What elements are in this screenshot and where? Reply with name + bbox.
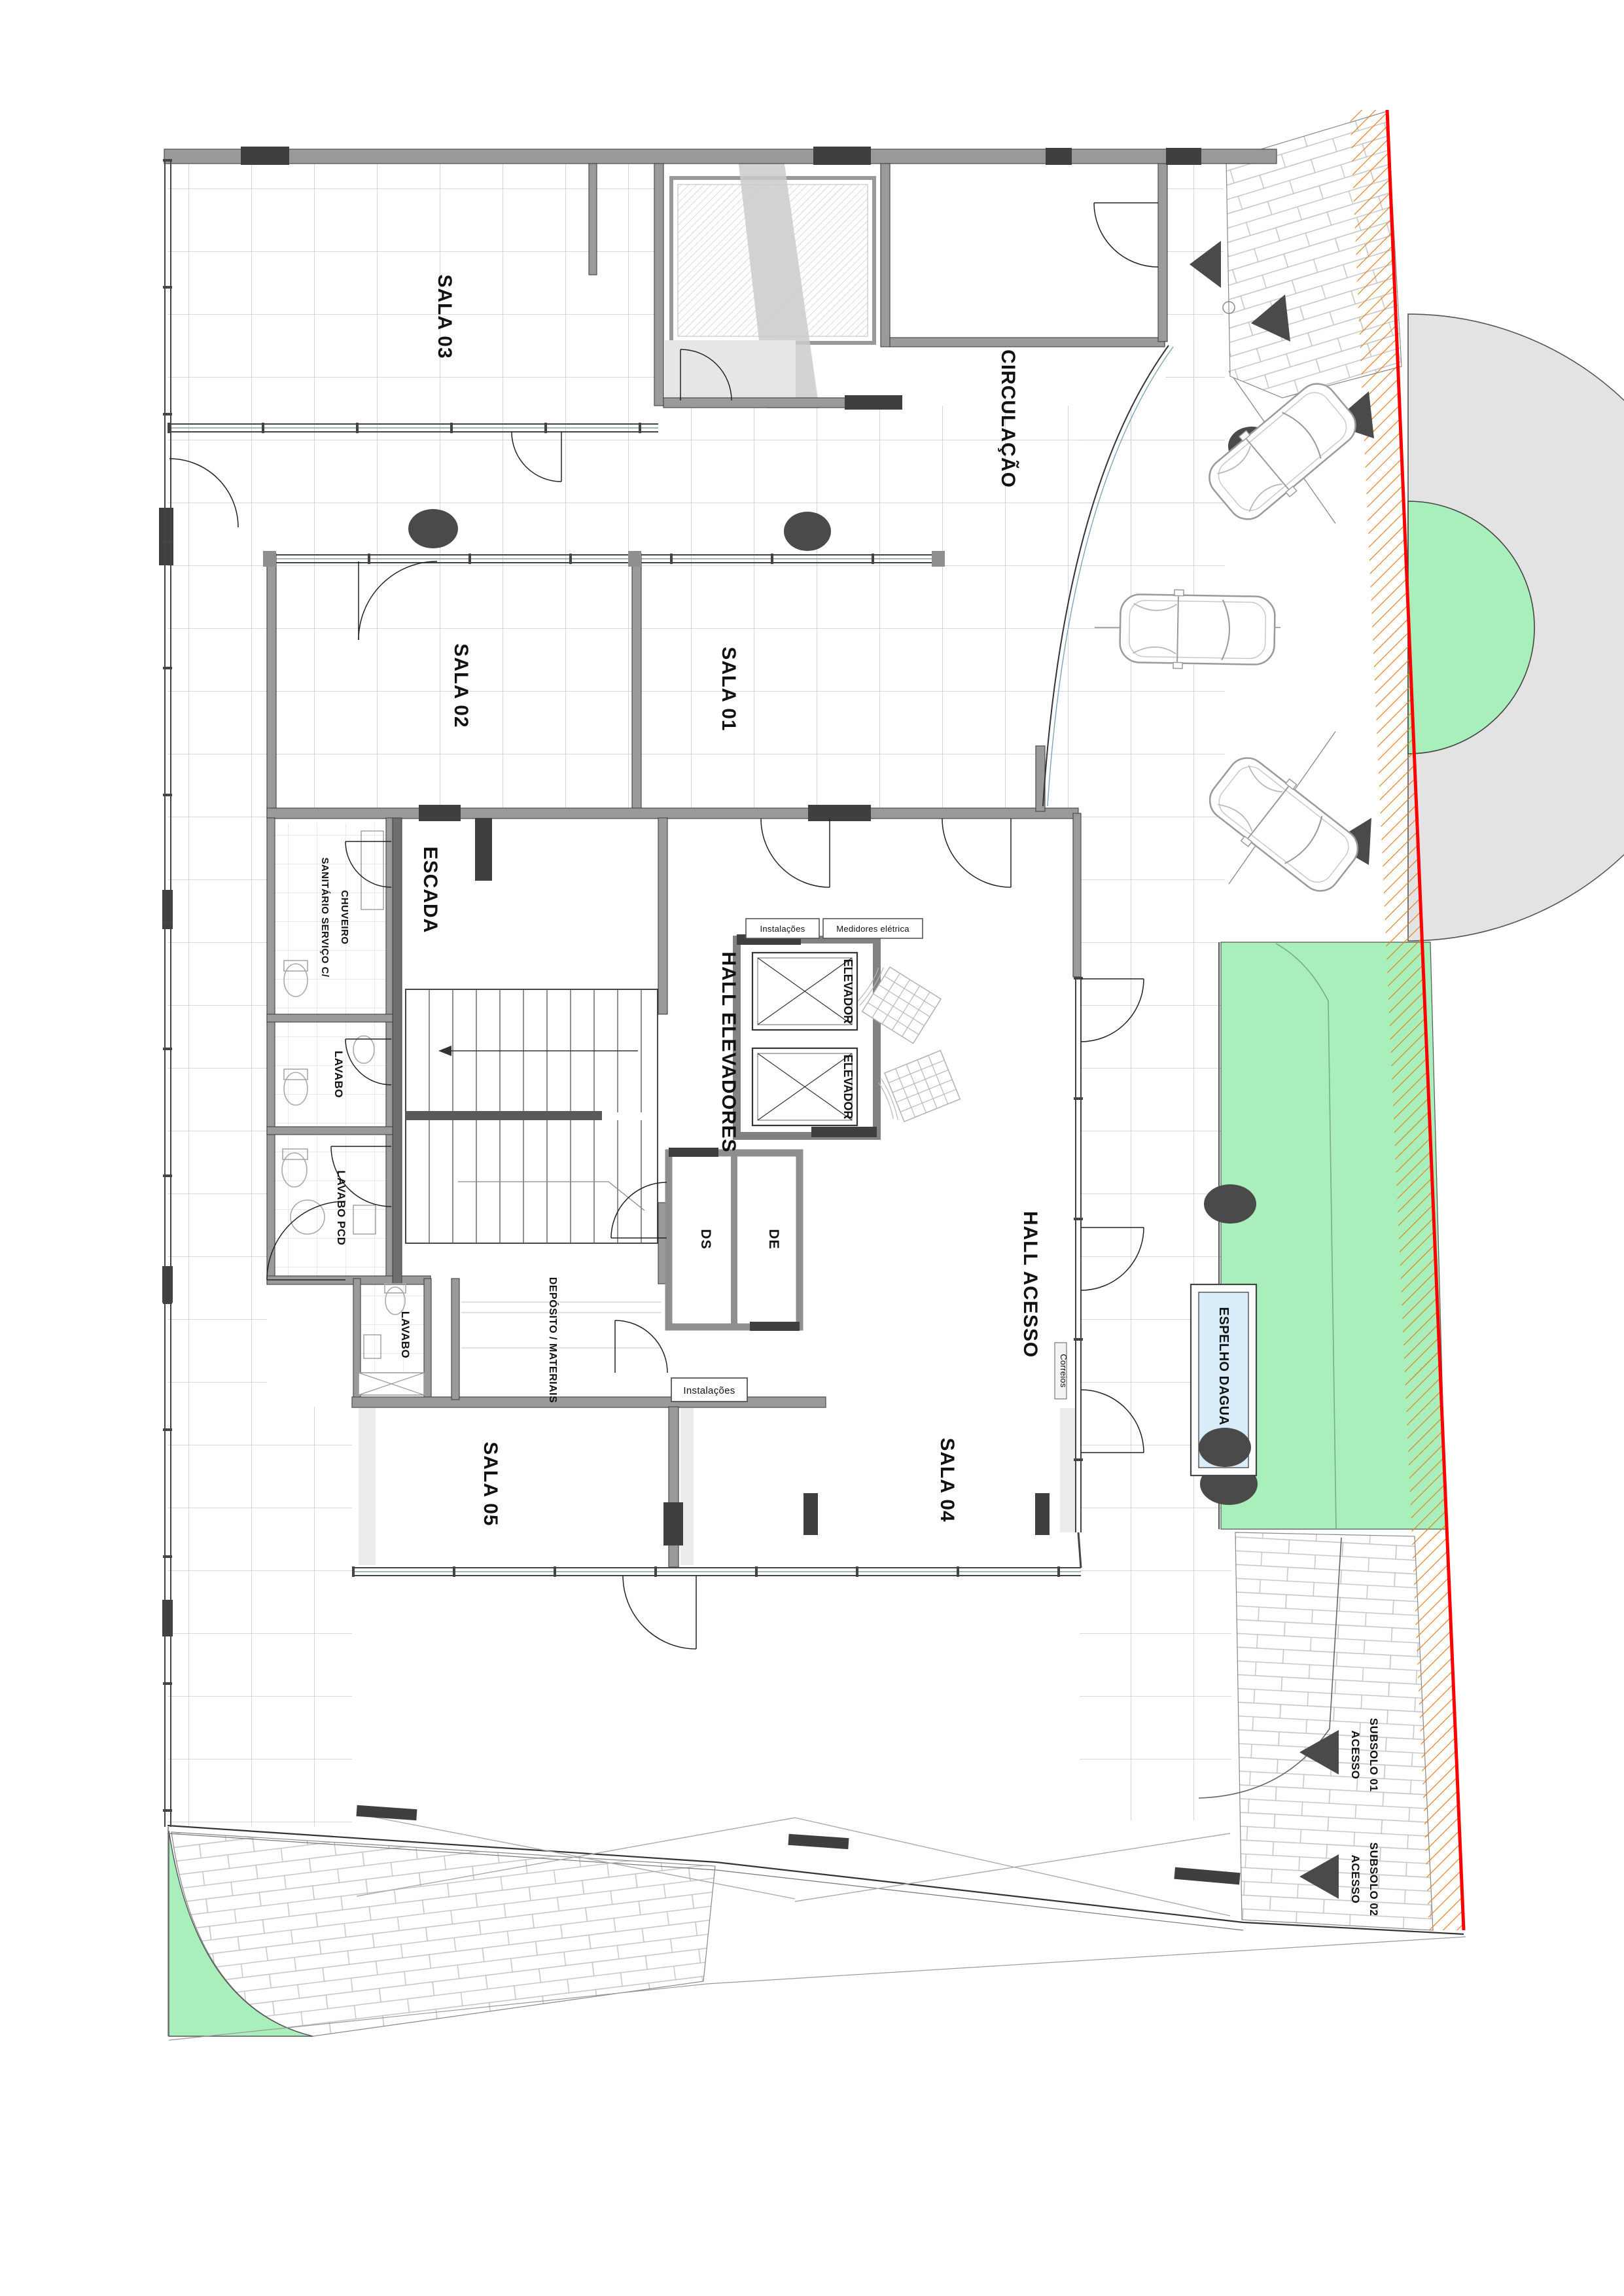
wall-equip-west	[654, 164, 663, 406]
room-label-sala-05: SALA 05	[480, 1441, 501, 1526]
label-acesso-subsolo-01-line2: SUBSOLO 01	[1368, 1718, 1380, 1792]
gate-post	[788, 1834, 849, 1849]
label-elevador-1: ELEVADOR	[841, 959, 855, 1024]
wall-shaft	[589, 164, 597, 275]
label-acesso-subsolo-02-line2: SUBSOLO 02	[1368, 1843, 1380, 1916]
sidewalk-pavers-bottom-left	[169, 1831, 715, 2036]
label-espelho-dagua: ESPELHO DAGUA	[1216, 1307, 1231, 1426]
wall-core-south	[352, 1397, 826, 1407]
wall-wc-west	[267, 818, 275, 1279]
room-label-hall-elevadores: HALL ELEVADORES	[718, 951, 739, 1152]
room-label-sala-02: SALA 02	[450, 643, 472, 728]
floor-plan-svg: SALA 03 SALA 02 SALA 01 CIRCULAÇÃO ESCAD…	[0, 0, 1624, 2296]
wall-core-north	[267, 808, 1078, 819]
room-label-escada: ESCADA	[419, 847, 441, 934]
elevator-shaft-1	[752, 953, 857, 1030]
tree-dot	[1199, 1428, 1251, 1467]
wall-stair-west	[393, 818, 402, 1284]
room-label-lavabo-sup: LAVABO	[332, 1051, 345, 1098]
car-middle	[1120, 589, 1275, 670]
shaft-label-ds: DS	[698, 1229, 713, 1249]
label-elevador-2: ELEVADOR	[841, 1055, 855, 1120]
wall-equip-east	[881, 164, 890, 347]
room-label-sanitario-line2: CHUVEIRO	[339, 890, 350, 944]
stair-spine	[406, 1111, 602, 1120]
room-label-deposito: DEPÓSITO / MATERIAIS	[547, 1277, 559, 1404]
wall-north	[164, 149, 1277, 164]
wall-wc-div2	[267, 1127, 394, 1135]
room-label-sanitario-line1: SANITÁRIO SERVIÇO C/	[319, 857, 330, 977]
gate-post	[1174, 1867, 1240, 1885]
label-acesso-subsolo-01-line1: ACESSO	[1349, 1731, 1362, 1780]
room-label-lavabo-pcd: LAVABO PCD	[335, 1171, 347, 1246]
wall-stair-east-up	[658, 818, 667, 1014]
room-label-lavabo-inf: LAVABO	[399, 1311, 412, 1358]
wall-vestibule-south	[890, 338, 1165, 347]
wall-hall-east	[1073, 813, 1081, 977]
wall-lavabo2-east	[424, 1279, 431, 1400]
room-label-sala-04: SALA 04	[936, 1438, 958, 1522]
room-label-circulacao: CIRCULAÇÃO	[997, 349, 1019, 488]
shaft-label-de: DE	[766, 1229, 781, 1249]
shaft-x-box	[359, 1373, 424, 1395]
label-acesso-subsolo-02-line1: ACESSO	[1349, 1855, 1362, 1904]
elevator-shaft-2	[752, 1048, 857, 1125]
label-instalacoes-2: Instalações	[683, 1385, 735, 1396]
label-instalacoes-1: Instalações	[760, 924, 805, 934]
gate-post	[356, 1805, 417, 1820]
label-medidores: Medidores elétrica	[836, 924, 909, 934]
room-label-sala-01: SALA 01	[718, 646, 739, 731]
stair	[406, 989, 658, 1243]
wall-sala02-east	[632, 554, 641, 818]
room-label-hall-acesso: HALL ACESSO	[1019, 1211, 1041, 1358]
wall-vestibule-east	[1158, 164, 1167, 342]
door-sala05-south	[623, 1576, 696, 1649]
floor-plan-sheet: SALA 03 SALA 02 SALA 01 CIRCULAÇÃO ESCAD…	[0, 0, 1624, 2296]
tree-dot	[784, 512, 831, 551]
wall-wc-div1	[267, 1014, 394, 1022]
room-label-sala-03: SALA 03	[434, 274, 455, 359]
tree-dot	[1204, 1184, 1256, 1224]
wall-deposito-west	[451, 1279, 459, 1400]
tree-dot	[408, 509, 458, 548]
label-correios: Correios	[1059, 1354, 1068, 1388]
wall-sala02-west	[267, 554, 276, 818]
